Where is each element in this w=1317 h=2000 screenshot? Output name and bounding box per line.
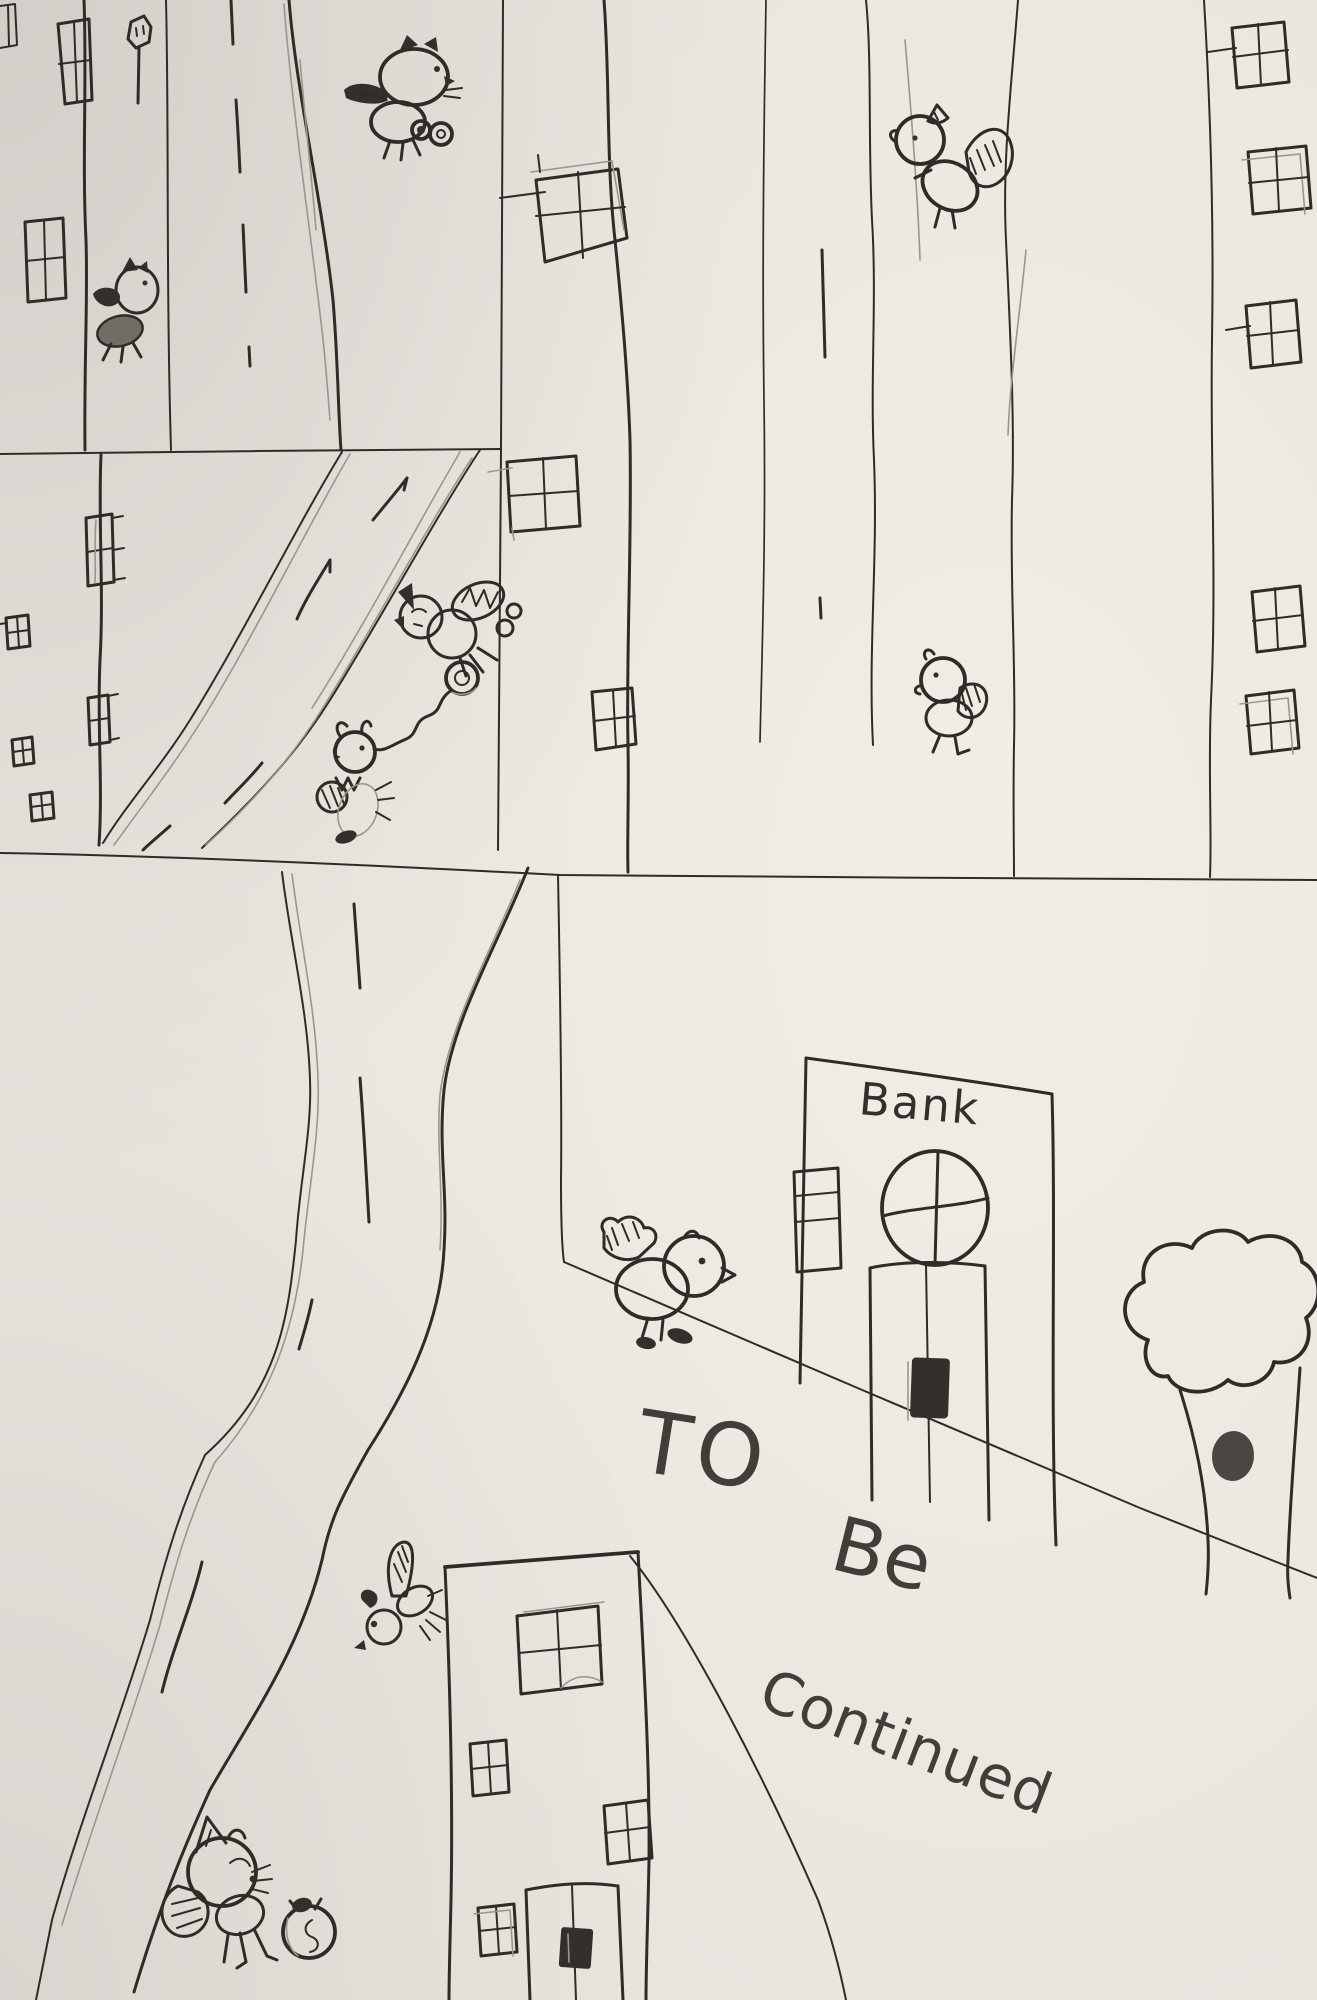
hand-drawn-comic-page: Bank [0, 0, 1317, 2000]
door-handle [559, 1927, 594, 1969]
paper-vignette-bottomleft [0, 0, 1317, 2000]
comic-drawing: Bank [0, 0, 1317, 2000]
door-handle [910, 1357, 950, 1418]
bank-sign: Bank [857, 1072, 982, 1135]
caption-to: TO [630, 1392, 777, 1512]
